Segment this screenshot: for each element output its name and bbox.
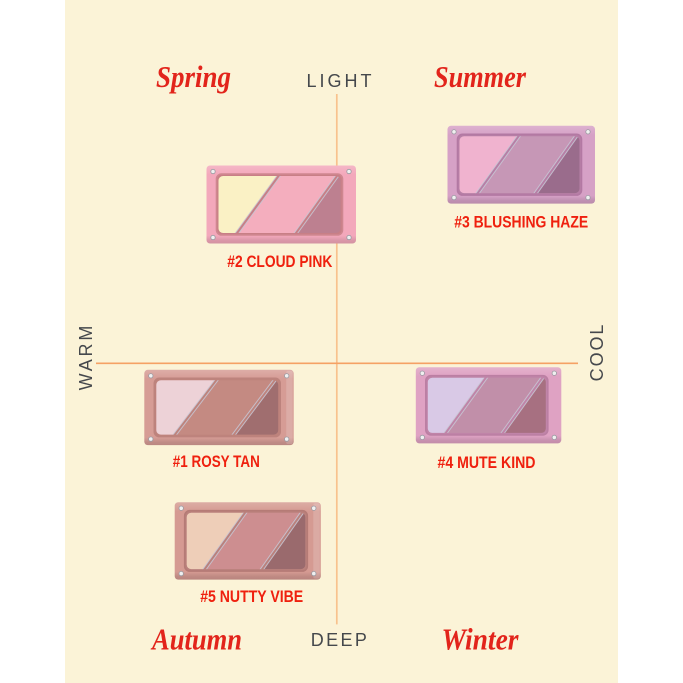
svg-text:#4 MUTE KIND: #4 MUTE KIND [438, 453, 536, 472]
svg-text:Autumn: Autumn [150, 622, 242, 657]
svg-text:#1 ROSY TAN: #1 ROSY TAN [173, 452, 260, 471]
svg-text:Spring: Spring [156, 59, 231, 94]
svg-text:WARM: WARM [76, 323, 96, 391]
svg-text:#3 BLUSHING HAZE: #3 BLUSHING HAZE [454, 213, 588, 232]
svg-text:LIGHT: LIGHT [306, 71, 374, 91]
svg-text:#2 CLOUD PINK: #2 CLOUD PINK [227, 252, 333, 271]
svg-text:DEEP: DEEP [311, 630, 370, 650]
svg-text:#5 NUTTY VIBE: #5 NUTTY VIBE [200, 587, 303, 606]
svg-text:COOL: COOL [587, 323, 607, 382]
svg-text:Summer: Summer [434, 59, 527, 94]
svg-text:Winter: Winter [442, 622, 520, 657]
